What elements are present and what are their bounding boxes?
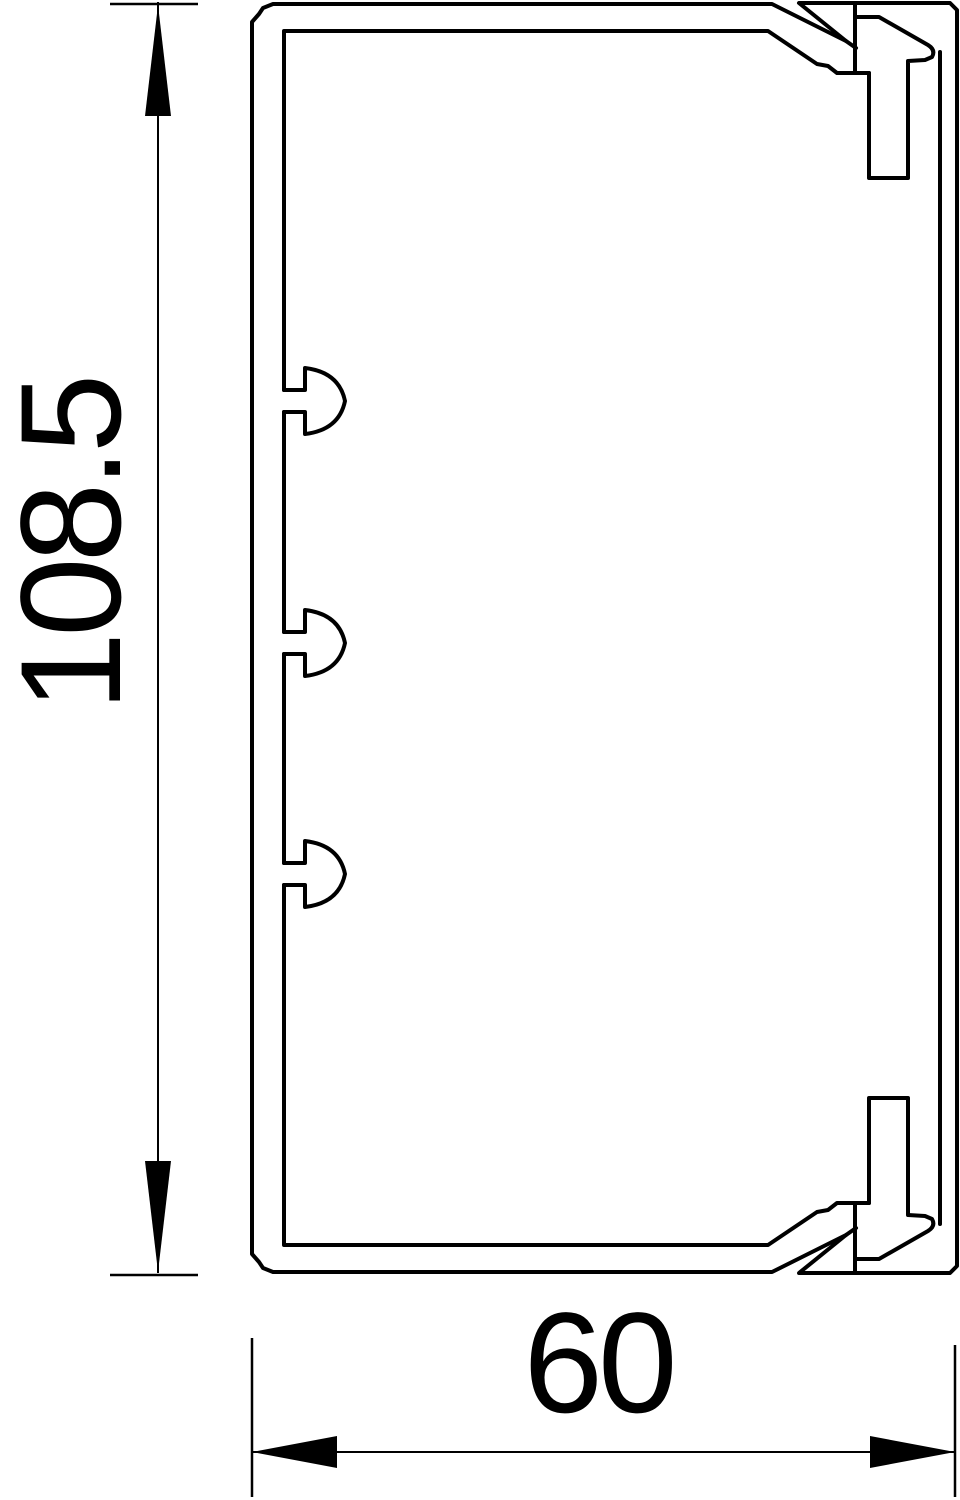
height-arrow-down-icon [145,1161,171,1272]
body-inner-contour [284,31,869,1245]
width-arrow-left-icon [252,1436,337,1468]
profile-body [252,4,869,1272]
profile-lid [799,3,957,1273]
width-dimension-label: 60 [523,1284,672,1443]
cable-clip-middle [284,610,345,676]
height-arrow-up-icon [145,5,171,116]
height-dimension-label: 108.5 [0,379,151,712]
cable-clip-bottom [284,841,345,907]
lid-bottom-hook [855,1098,933,1273]
width-arrow-right-icon [870,1436,955,1468]
lid-top-hook [855,3,933,178]
technical-drawing-canvas: 108.5 60 [0,0,960,1500]
trunking-profile-drawing: 108.5 60 [0,0,960,1500]
width-dimension: 60 [252,1284,955,1497]
lid-outer-contour [799,3,957,1273]
cable-clip-top [284,368,345,434]
height-dimension: 108.5 [0,2,198,1275]
